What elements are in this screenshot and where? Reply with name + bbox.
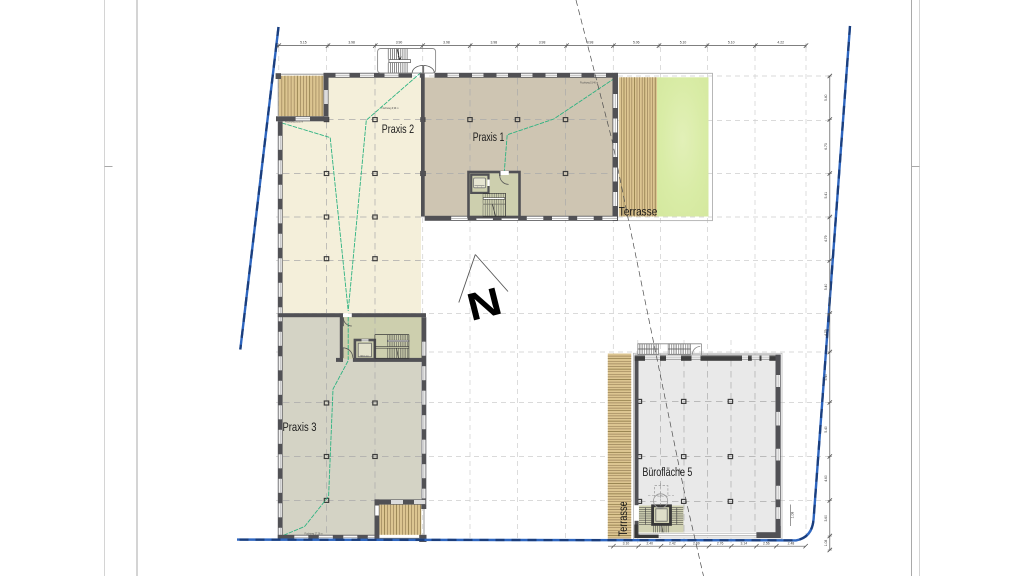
svg-text:4.79: 4.79	[824, 329, 828, 336]
svg-text:2.69: 2.69	[693, 542, 700, 546]
svg-text:Praxis 2: Praxis 2	[382, 122, 414, 136]
svg-text:2.48: 2.48	[788, 542, 795, 546]
svg-text:2.40: 2.40	[646, 542, 653, 546]
svg-text:3.14: 3.14	[741, 542, 748, 546]
svg-text:5.40: 5.40	[824, 94, 828, 101]
svg-text:1.08: 1.08	[791, 512, 795, 519]
svg-text:Terrasse: Terrasse	[619, 205, 658, 219]
svg-text:5.10: 5.10	[728, 41, 735, 45]
svg-text:4.79: 4.79	[824, 235, 828, 242]
svg-text:3.90: 3.90	[396, 41, 403, 45]
svg-text:3.60: 3.60	[824, 515, 828, 522]
svg-text:Fluchtweg 19,46 m: Fluchtweg 19,46 m	[580, 80, 598, 84]
svg-text:2.76: 2.76	[717, 542, 724, 546]
svg-text:3.98: 3.98	[539, 41, 546, 45]
svg-text:5.40: 5.40	[824, 284, 828, 291]
svg-text:Terrasse: Terrasse	[616, 501, 630, 536]
svg-text:5.40: 5.40	[824, 426, 828, 433]
svg-text:3.98: 3.98	[491, 41, 498, 45]
svg-text:4.60: 4.60	[824, 475, 828, 482]
svg-text:Fluchtweg 6,99 m: Fluchtweg 6,99 m	[382, 106, 399, 110]
svg-text:2.56: 2.56	[763, 542, 770, 546]
svg-text:3.98: 3.98	[443, 41, 450, 45]
svg-text:Bürofläche 5: Bürofläche 5	[642, 465, 692, 479]
svg-text:5.15: 5.15	[300, 41, 307, 45]
svg-text:5.41: 5.41	[824, 192, 828, 199]
svg-text:6.73: 6.73	[824, 143, 828, 150]
svg-text:3.98: 3.98	[348, 41, 355, 45]
svg-text:2.42: 2.42	[669, 542, 676, 546]
svg-text:Praxis 1: Praxis 1	[473, 130, 505, 144]
svg-text:Praxis 3: Praxis 3	[283, 420, 317, 434]
svg-text:3.10: 3.10	[623, 542, 630, 546]
svg-text:5.10: 5.10	[680, 41, 687, 45]
svg-text:MB 1:10: MB 1:10	[360, 355, 369, 357]
svg-text:1.08: 1.08	[824, 540, 828, 547]
svg-text:5.40: 5.40	[824, 374, 828, 381]
svg-text:4.22: 4.22	[777, 41, 784, 45]
svg-text:3.98: 3.98	[587, 41, 594, 45]
svg-text:5.06: 5.06	[633, 41, 640, 45]
